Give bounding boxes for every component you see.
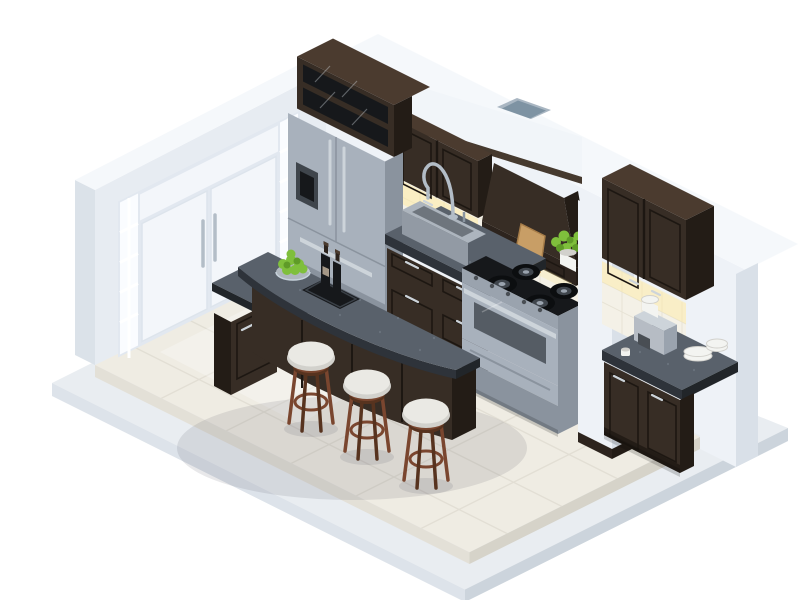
left-wall-end-cap bbox=[75, 180, 95, 365]
coffee-cup bbox=[621, 348, 630, 357]
cushion-top bbox=[288, 342, 334, 367]
sidelight-window-left bbox=[120, 194, 138, 359]
isometric-kitchen-scene bbox=[0, 0, 800, 600]
faucet-base bbox=[448, 214, 458, 220]
kitchen-render bbox=[0, 0, 800, 600]
